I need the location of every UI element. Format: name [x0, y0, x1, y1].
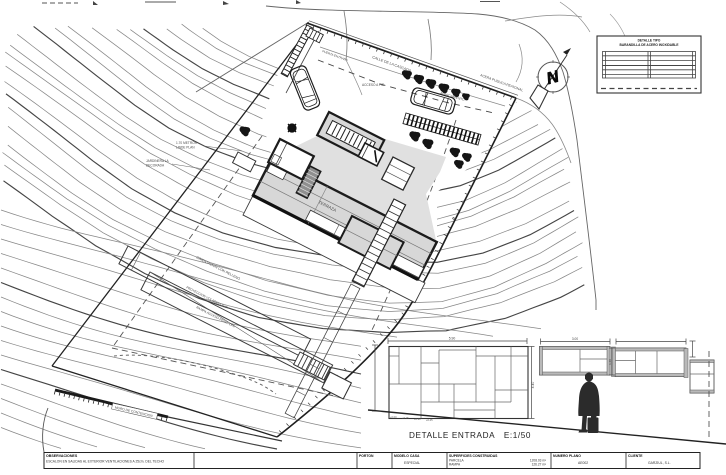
- svg-text:+0.30: +0.30: [414, 417, 421, 421]
- svg-text:MODELO CASA: MODELO CASA: [394, 454, 420, 458]
- svg-text:DECORADA: DECORADA: [146, 164, 165, 168]
- svg-text:DETALLE ENTRADA E:1/50: DETALLE ENTRADA E:1/50: [409, 431, 531, 440]
- svg-text:3.00: 3.00: [572, 337, 578, 341]
- svg-text:SUPERFICIES CONSTRUIDAS: SUPERFICIES CONSTRUIDAS: [449, 454, 498, 458]
- svg-text:PORTON: PORTON: [359, 454, 374, 458]
- svg-text:AE002: AE002: [578, 461, 588, 465]
- svg-text:5.90: 5.90: [449, 337, 456, 341]
- svg-text:BARANDILLA DE ACERO INOXIDABLE: BARANDILLA DE ACERO INOXIDABLE: [620, 43, 679, 47]
- svg-text:ACCESO A PIE: ACCESO A PIE: [362, 83, 384, 87]
- svg-text:+0.15: +0.15: [402, 416, 409, 420]
- svg-text:OBSERVACIONES: OBSERVACIONES: [46, 454, 78, 458]
- svg-text:1.60: 1.60: [608, 359, 612, 365]
- svg-text:GARZIUL, S.L.: GARZIUL, S.L.: [648, 461, 671, 465]
- svg-text:4.40: 4.40: [531, 382, 535, 389]
- svg-text:LINDE PLAN: LINDE PLAN: [176, 146, 195, 150]
- svg-text:1.70 METROS: 1.70 METROS: [176, 141, 197, 145]
- svg-text:ESCALON EN SALIDAS AL EXTERIOR: ESCALON EN SALIDAS AL EXTERIOR VENTILACI…: [46, 460, 164, 464]
- svg-text:126.27 m²: 126.27 m²: [532, 463, 546, 467]
- svg-text:+0.45: +0.45: [426, 418, 433, 422]
- svg-text:CLIENTE: CLIENTE: [628, 454, 643, 458]
- svg-text:NUMERO PLANO: NUMERO PLANO: [553, 454, 581, 458]
- svg-text:ESPECIAL: ESPECIAL: [404, 461, 420, 465]
- svg-text:RAMPA: RAMPA: [449, 463, 461, 467]
- svg-text:+0.00: +0.00: [390, 415, 397, 419]
- svg-text:JARDINERA LA: JARDINERA LA: [146, 159, 170, 163]
